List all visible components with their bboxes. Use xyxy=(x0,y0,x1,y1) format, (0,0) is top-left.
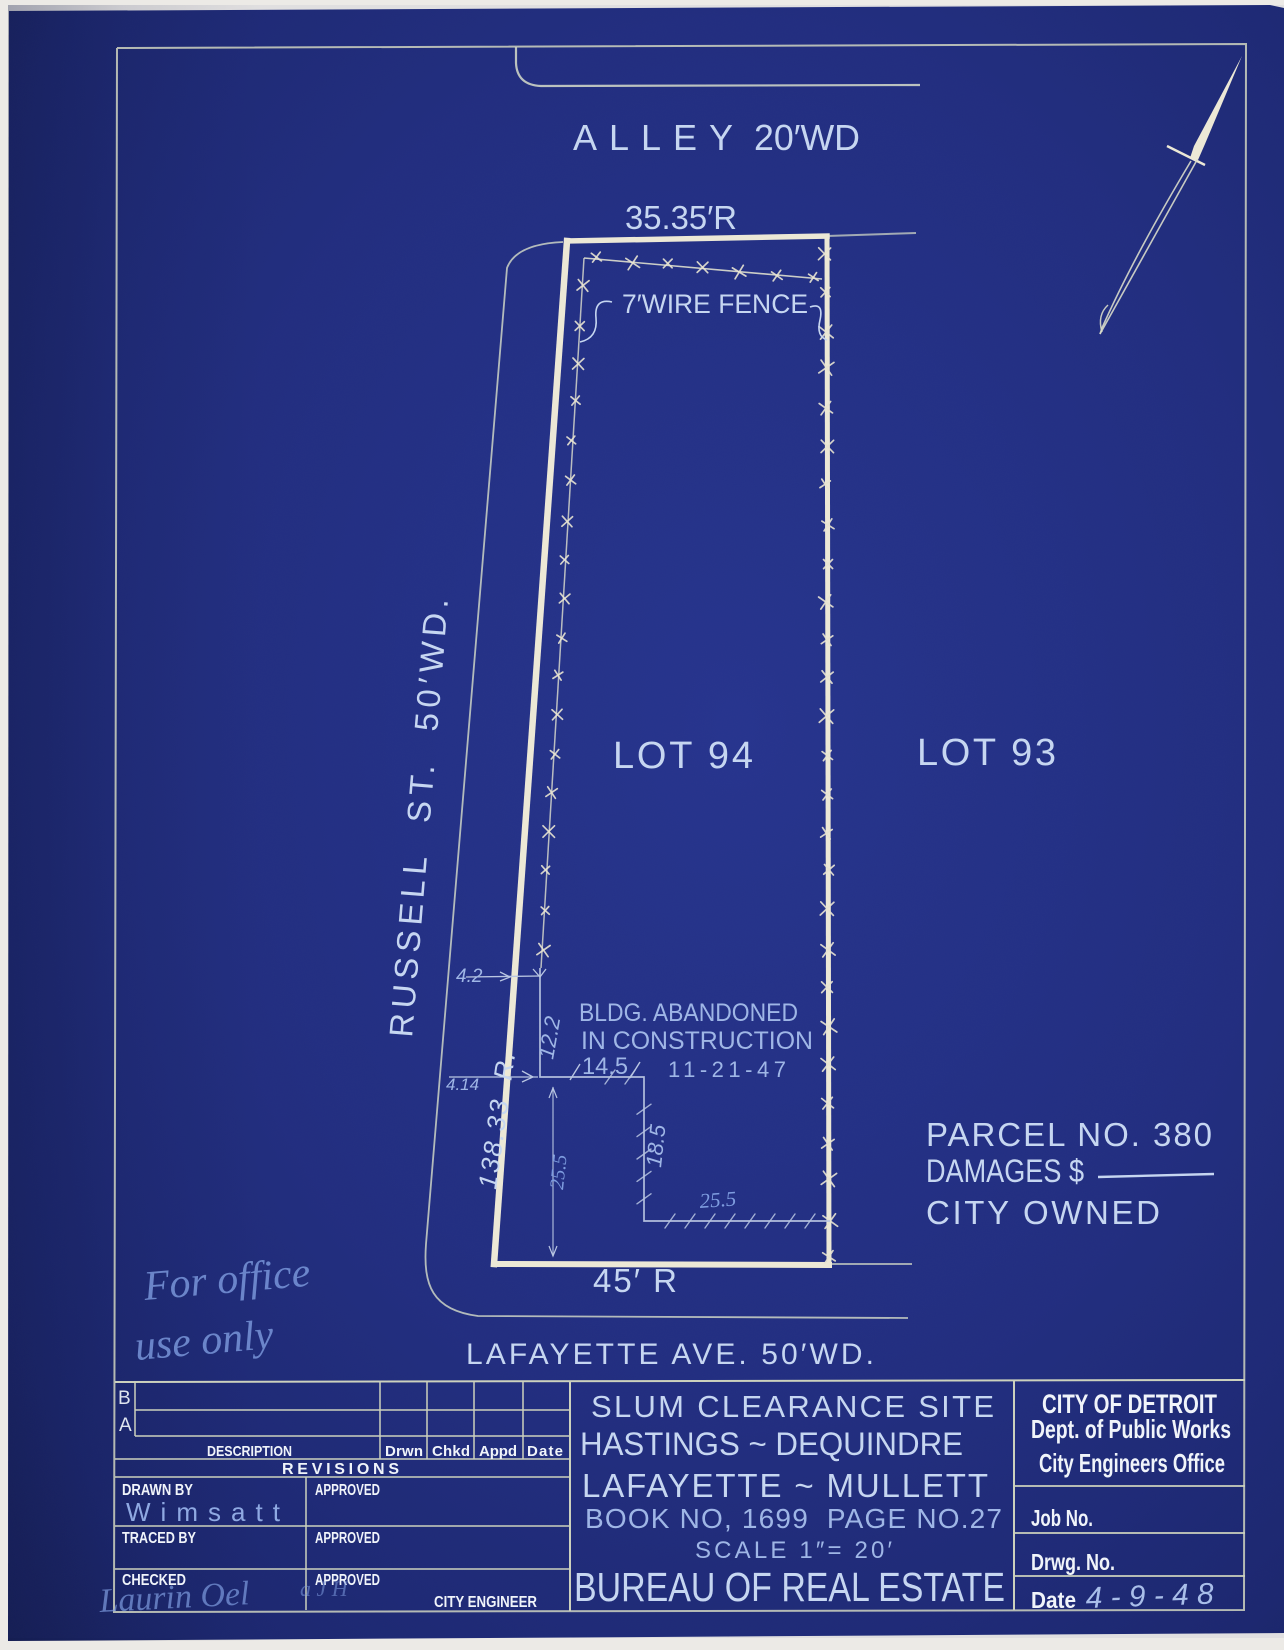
svg-text:BUREAU OF REAL ESTATE: BUREAU OF REAL ESTATE xyxy=(574,1564,1005,1610)
svg-text:BLDG. ABANDONED: BLDG. ABANDONED xyxy=(579,999,798,1027)
svg-text:REVISIONS: REVISIONS xyxy=(282,1461,399,1478)
svg-text:Job No.: Job No. xyxy=(1031,1505,1093,1531)
svg-text:Drwg. No.: Drwg. No. xyxy=(1031,1549,1115,1575)
svg-text:CITY OWNED: CITY OWNED xyxy=(926,1194,1160,1231)
svg-text:TRACED BY: TRACED BY xyxy=(122,1530,196,1547)
svg-text:APPROVED: APPROVED xyxy=(315,1482,380,1499)
svg-text:LOT 93: LOT 93 xyxy=(917,732,1056,774)
svg-text:LAFAYETTE ~ MULLETT: LAFAYETTE ~ MULLETT xyxy=(582,1467,988,1504)
svg-text:20′WD: 20′WD xyxy=(754,117,860,158)
svg-text:25.5: 25.5 xyxy=(546,1153,572,1190)
svg-text:Appd: Appd xyxy=(479,1443,517,1460)
svg-text:Dept. of Public Works: Dept. of Public Works xyxy=(1031,1414,1231,1444)
svg-text:BOOK NO, 1699 PAGE NO.27: BOOK NO, 1699 PAGE NO.27 xyxy=(585,1503,1002,1534)
svg-text:25.5: 25.5 xyxy=(699,1186,737,1213)
svg-text:35.35′R: 35.35′R xyxy=(625,199,737,236)
svg-text:Date: Date xyxy=(527,1443,563,1460)
svg-text:Laurin Oel: Laurin Oel xyxy=(97,1575,250,1620)
svg-text:Chkd: Chkd xyxy=(432,1443,470,1460)
svg-text:HASTINGS ~ DEQUINDRE: HASTINGS ~ DEQUINDRE xyxy=(580,1426,963,1462)
svg-text:18.5: 18.5 xyxy=(641,1123,670,1169)
svg-text:City Engineers Office: City Engineers Office xyxy=(1039,1448,1225,1478)
svg-text:IN CONSTRUCTION: IN CONSTRUCTION xyxy=(581,1027,813,1055)
svg-text:14.5: 14.5 xyxy=(582,1053,628,1080)
svg-text:SCALE 1″= 20′: SCALE 1″= 20′ xyxy=(695,1537,893,1564)
svg-text:Drwn: Drwn xyxy=(385,1443,423,1460)
svg-text:SLUM CLEARANCE SITE: SLUM CLEARANCE SITE xyxy=(591,1389,994,1424)
svg-text:DAMAGES $: DAMAGES $ xyxy=(926,1153,1084,1189)
svg-text:PARCEL NO. 380: PARCEL NO. 380 xyxy=(926,1116,1212,1153)
svg-text:DESCRIPTION: DESCRIPTION xyxy=(207,1443,292,1460)
svg-text:B: B xyxy=(118,1388,131,1409)
svg-text:APPROVED: APPROVED xyxy=(315,1530,380,1547)
svg-text:4.2: 4.2 xyxy=(456,966,483,987)
svg-text:4.14: 4.14 xyxy=(446,1075,479,1094)
svg-text:Date: Date xyxy=(1031,1587,1076,1613)
svg-text:ALLEY: ALLEY xyxy=(573,117,733,158)
svg-text:7′WIRE FENCE: 7′WIRE FENCE xyxy=(622,289,808,319)
svg-text:45′ R: 45′ R xyxy=(593,1262,677,1299)
svg-text:a J H: a J H xyxy=(300,1576,349,1601)
svg-text:LOT 94: LOT 94 xyxy=(613,735,753,777)
svg-text:A: A xyxy=(119,1415,132,1436)
svg-text:CITY ENGINEER: CITY ENGINEER xyxy=(434,1594,537,1611)
